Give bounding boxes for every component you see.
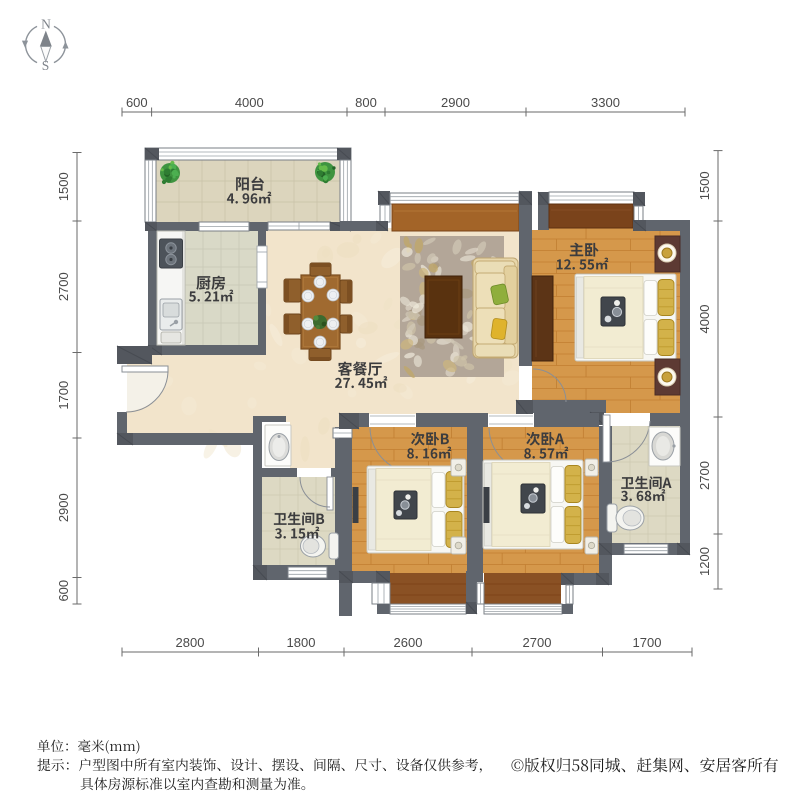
svg-text:600: 600 xyxy=(56,580,71,602)
svg-text:600: 600 xyxy=(126,95,148,110)
svg-text:1800: 1800 xyxy=(287,635,316,650)
svg-text:2600: 2600 xyxy=(394,635,423,650)
svg-text:N: N xyxy=(41,17,51,32)
svg-text:4000: 4000 xyxy=(235,95,264,110)
svg-text:4000: 4000 xyxy=(697,305,712,334)
svg-text:2800: 2800 xyxy=(176,635,205,650)
svg-text:2700: 2700 xyxy=(56,272,71,301)
svg-text:2700: 2700 xyxy=(523,635,552,650)
svg-text:2700: 2700 xyxy=(697,461,712,490)
svg-text:1500: 1500 xyxy=(697,171,712,200)
svg-text:1700: 1700 xyxy=(56,381,71,410)
svg-text:1700: 1700 xyxy=(633,635,662,650)
svg-text:2900: 2900 xyxy=(441,95,470,110)
svg-text:1200: 1200 xyxy=(697,547,712,576)
svg-text:3300: 3300 xyxy=(591,95,620,110)
svg-text:S: S xyxy=(42,58,50,73)
svg-text:800: 800 xyxy=(355,95,377,110)
svg-text:1500: 1500 xyxy=(56,172,71,201)
svg-text:2900: 2900 xyxy=(56,493,71,522)
